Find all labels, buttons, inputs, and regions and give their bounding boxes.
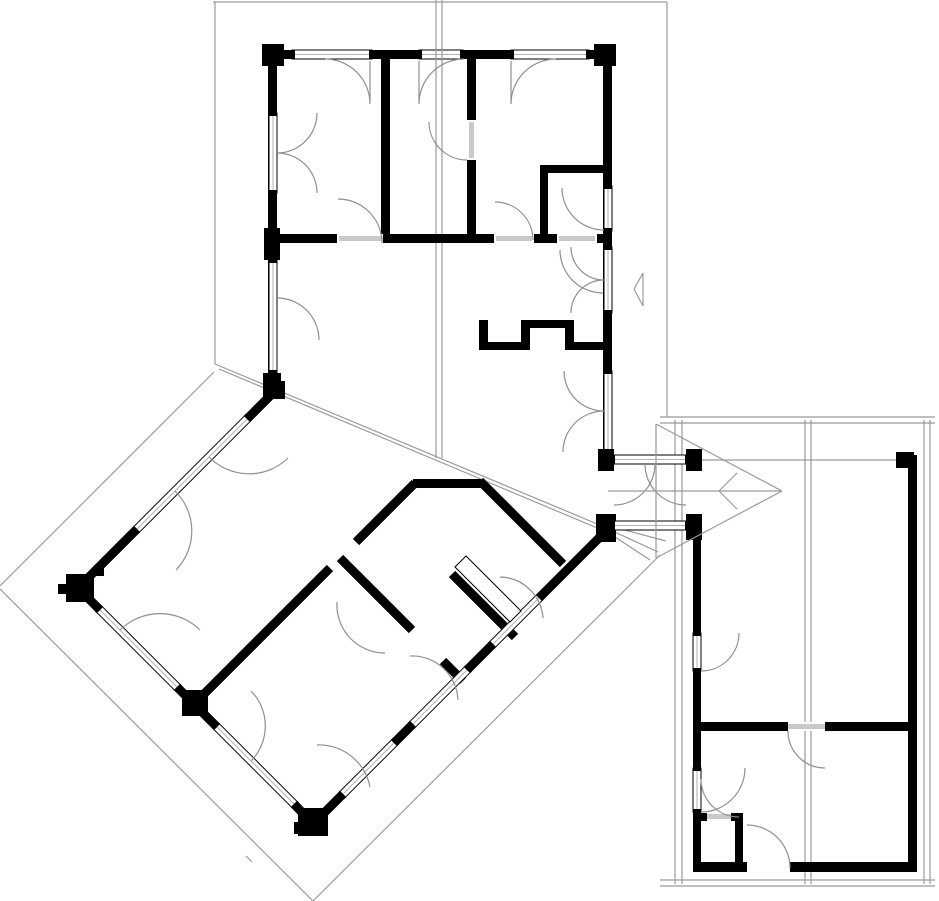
door-openings bbox=[337, 120, 825, 872]
wall-segments bbox=[268, 50, 917, 872]
floorplan-page bbox=[0, 0, 939, 901]
door-leaf-lines bbox=[370, 61, 511, 102]
door-leaves bbox=[339, 122, 825, 819]
window-openings bbox=[269, 50, 701, 812]
corner-posts bbox=[58, 44, 914, 836]
floorplan-canvas bbox=[0, 0, 939, 901]
